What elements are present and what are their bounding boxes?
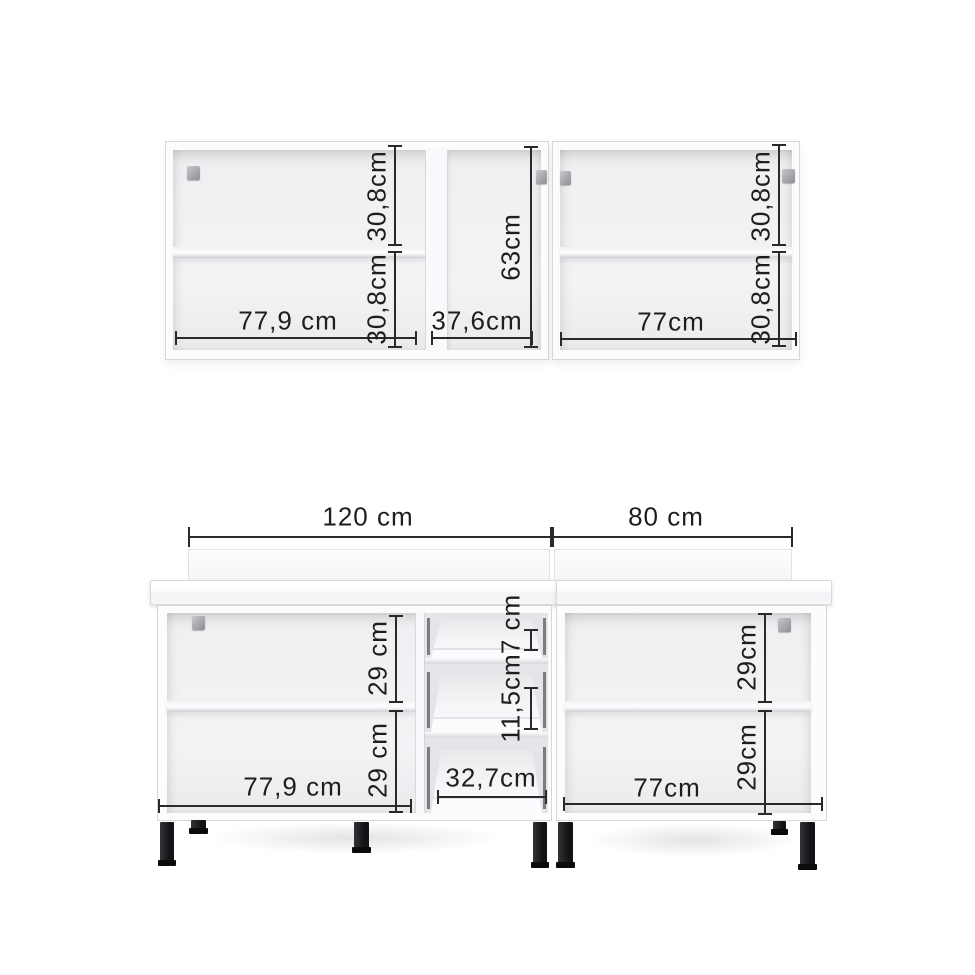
cabinet-leg — [533, 822, 547, 868]
cabinet-leg — [800, 822, 815, 870]
base-left-bottom-height-label: 29 cm — [363, 722, 394, 798]
dim-line-base-left-top — [395, 615, 397, 703]
base-left-unit-width-label: 120 cm — [322, 502, 413, 533]
hinge-icon — [782, 169, 795, 183]
drawer-width-label: 32,7cm — [445, 763, 536, 794]
base-left-top-height-label: 29 cm — [363, 620, 394, 696]
backsplash-left — [188, 549, 550, 581]
base-left-shelf — [167, 701, 415, 712]
hinge-icon — [187, 166, 200, 180]
cabinet-dimensions-diagram: 30,8cm 30,8cm 63cm 30,8cm 30,8cm 77,9 cm… — [0, 0, 975, 975]
upper-middle-width-label: 37,6cm — [431, 306, 522, 337]
hinge-icon — [192, 616, 205, 630]
drawer-front — [431, 797, 542, 813]
upper-right-bottom-height-label: 30,8cm — [746, 253, 777, 344]
drawer-slide — [543, 618, 546, 655]
dim-line-base-left-unit-width — [188, 536, 552, 538]
dim-line-base-left-bottom — [395, 710, 397, 813]
drawer-slide — [543, 672, 546, 728]
cabinet-leg — [160, 822, 174, 866]
upper-left-bottom-height-label: 30,8cm — [362, 253, 393, 344]
cabinet-leg — [354, 822, 369, 853]
drawer-slide — [427, 618, 430, 655]
drawer-slide — [427, 672, 430, 728]
upper-left-top-height-label: 30,8cm — [362, 150, 393, 241]
dim-line-drawer-middle — [530, 687, 532, 730]
base-right-bottom-height-label: 29cm — [732, 723, 763, 791]
dim-line-base-right-top — [764, 613, 766, 703]
cabinet-leg — [773, 821, 786, 835]
floor-shadow — [548, 816, 838, 864]
dim-line-upper-right-bottom — [778, 251, 780, 347]
base-right-unit-width-label: 80 cm — [628, 502, 704, 533]
dim-line-upper-left-bottom — [394, 251, 396, 348]
hinge-icon — [560, 171, 571, 185]
dim-line-base-right-bottom — [764, 710, 766, 815]
dim-line-upper-right-top — [778, 144, 780, 246]
dim-line-base-right-unit-width — [552, 536, 793, 538]
base-right-shelf — [565, 701, 811, 712]
base-left-width-label: 77,9 cm — [243, 772, 343, 803]
hinge-icon — [778, 618, 791, 632]
drawer-slide — [427, 747, 430, 809]
base-right-width-label: 77cm — [633, 773, 701, 804]
drawer-top-height-label: 7 cm — [496, 594, 527, 654]
drawer-middle-height-label: 11,5cm — [496, 653, 527, 742]
upper-left-width-label: 77,9 cm — [238, 306, 338, 337]
dim-line-upper-middle-height — [530, 146, 532, 348]
dim-line-base-left-width — [158, 805, 412, 807]
base-drawer-divider — [415, 613, 425, 813]
dim-line-upper-middle-width — [431, 337, 533, 339]
countertop-right — [556, 580, 832, 605]
cabinet-leg — [558, 822, 573, 868]
base-right-top-height-label: 29cm — [732, 623, 763, 691]
hinge-icon — [536, 170, 547, 184]
upper-right-width-label: 77cm — [637, 307, 705, 338]
dim-line-drawer-width — [437, 796, 547, 798]
dim-line-upper-left-top — [394, 145, 396, 246]
cabinet-leg — [191, 820, 206, 834]
upper-right-top-height-label: 30,8cm — [746, 150, 777, 241]
dim-line-drawer-top — [530, 629, 532, 651]
upper-middle-height-label: 63cm — [496, 213, 527, 281]
backsplash-right — [554, 549, 792, 581]
